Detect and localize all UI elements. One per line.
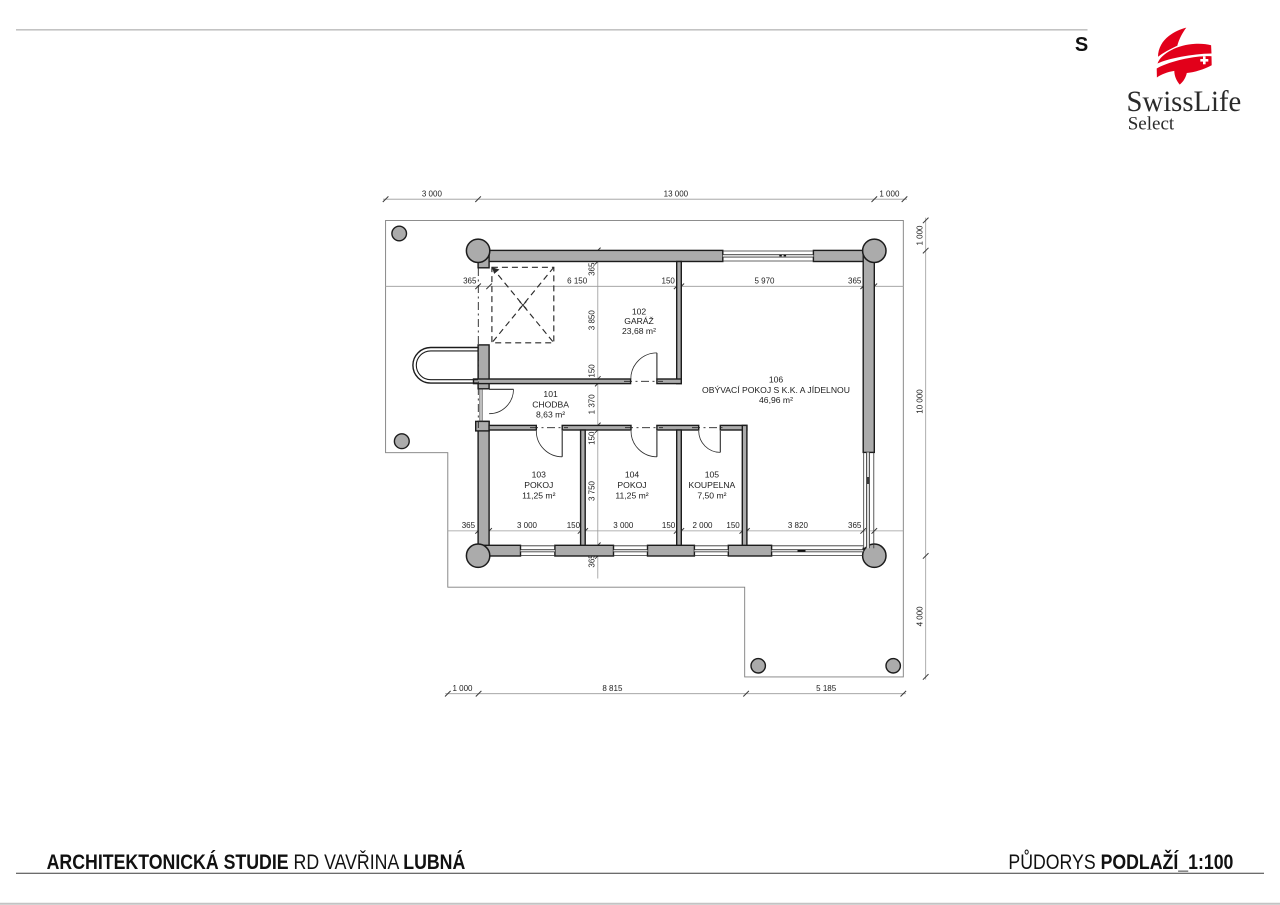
svg-text:Select: Select bbox=[1128, 114, 1175, 135]
svg-text:3 000: 3 000 bbox=[613, 521, 634, 530]
svg-text:365: 365 bbox=[462, 521, 476, 530]
svg-text:150: 150 bbox=[588, 431, 597, 445]
svg-text:3 850: 3 850 bbox=[588, 310, 597, 331]
svg-text:3 000: 3 000 bbox=[517, 521, 538, 530]
svg-text:3 820: 3 820 bbox=[788, 521, 809, 530]
svg-text:1 370: 1 370 bbox=[588, 394, 597, 415]
svg-text:OBÝVACÍ POKOJ S K.K. A JÍDELNO: OBÝVACÍ POKOJ S K.K. A JÍDELNOU bbox=[702, 385, 850, 395]
svg-text:8 815: 8 815 bbox=[602, 684, 623, 693]
svg-text:23,68 m²: 23,68 m² bbox=[622, 326, 656, 336]
svg-text:11,25 m²: 11,25 m² bbox=[615, 490, 648, 500]
svg-text:150: 150 bbox=[726, 521, 740, 530]
svg-text:10 000: 10 000 bbox=[916, 389, 925, 414]
svg-text:101: 101 bbox=[543, 389, 558, 399]
svg-text:105: 105 bbox=[705, 470, 720, 480]
svg-text:PŮDORYS PODLAŽÍ_1:100: PŮDORYS PODLAŽÍ_1:100 bbox=[1008, 849, 1233, 874]
svg-text:3 000: 3 000 bbox=[422, 190, 443, 199]
svg-text:13 000: 13 000 bbox=[664, 190, 689, 199]
svg-text:102: 102 bbox=[632, 306, 647, 316]
svg-text:104: 104 bbox=[625, 470, 640, 480]
svg-text:5 970: 5 970 bbox=[754, 277, 775, 286]
svg-text:4 000: 4 000 bbox=[916, 606, 925, 627]
svg-text:5 185: 5 185 bbox=[816, 684, 837, 693]
svg-text:POKOJ: POKOJ bbox=[524, 480, 553, 490]
svg-text:3 750: 3 750 bbox=[588, 480, 597, 501]
svg-text:KOUPELNA: KOUPELNA bbox=[688, 480, 735, 490]
svg-text:S: S bbox=[1075, 34, 1088, 56]
svg-text:365: 365 bbox=[848, 277, 862, 286]
svg-text:8,63 m²: 8,63 m² bbox=[536, 410, 565, 420]
svg-text:1 000: 1 000 bbox=[452, 684, 473, 693]
svg-text:1 000: 1 000 bbox=[879, 190, 900, 199]
svg-text:1 000: 1 000 bbox=[916, 225, 925, 246]
svg-text:6 150: 6 150 bbox=[567, 277, 588, 286]
svg-text:365: 365 bbox=[848, 521, 862, 530]
svg-text:150: 150 bbox=[662, 521, 676, 530]
svg-text:2 000: 2 000 bbox=[692, 521, 713, 530]
svg-text:POKOJ: POKOJ bbox=[617, 480, 646, 490]
svg-text:150: 150 bbox=[662, 277, 676, 286]
svg-text:103: 103 bbox=[532, 470, 547, 480]
svg-text:150: 150 bbox=[588, 364, 597, 378]
svg-text:365: 365 bbox=[463, 277, 477, 286]
svg-text:46,96 m²: 46,96 m² bbox=[759, 395, 793, 405]
svg-text:11,25 m²: 11,25 m² bbox=[522, 490, 555, 500]
svg-text:150: 150 bbox=[567, 521, 581, 530]
svg-text:CHODBA: CHODBA bbox=[532, 399, 569, 409]
svg-text:GARÁŽ: GARÁŽ bbox=[624, 316, 654, 326]
svg-text:365: 365 bbox=[588, 262, 597, 276]
svg-text:ARCHITEKTONICKÁ STUDIE RD VAVŘ: ARCHITEKTONICKÁ STUDIE RD VAVŘINA LUBNÁ bbox=[47, 849, 466, 874]
svg-text:7,50 m²: 7,50 m² bbox=[697, 490, 726, 500]
svg-text:106: 106 bbox=[769, 374, 784, 384]
